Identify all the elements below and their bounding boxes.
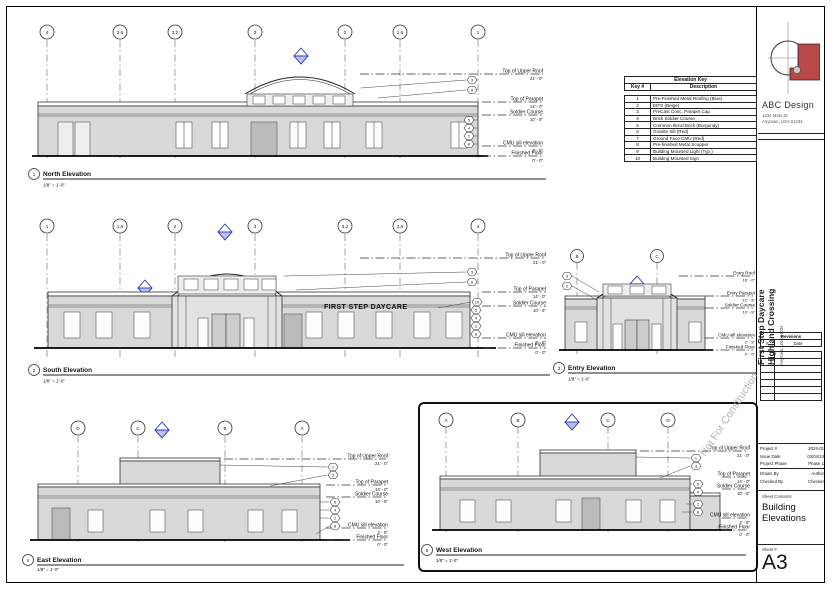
svg-text:West Elevation: West Elevation xyxy=(436,547,482,554)
svg-text:3: 3 xyxy=(254,224,257,229)
revisions-col-number: # xyxy=(761,340,775,347)
svg-text:0' - 0": 0' - 0" xyxy=(535,350,546,355)
firm-logo xyxy=(768,18,820,96)
west-building xyxy=(432,450,732,530)
elevation-key-row: 6Granite Sill (Red) xyxy=(625,128,757,135)
sheet-contents: Building Elevations xyxy=(762,502,824,524)
svg-text:1: 1 xyxy=(477,30,480,35)
svg-text:Soldier Course: Soldier Course xyxy=(510,110,543,116)
svg-text:CMU sill elevation: CMU sill elevation xyxy=(506,333,546,339)
svg-text:B: B xyxy=(223,426,226,431)
svg-text:10' - 8": 10' - 8" xyxy=(375,499,389,504)
svg-text:Top of Upper Roof: Top of Upper Roof xyxy=(505,253,546,259)
svg-text:CMU sill elevation: CMU sill elevation xyxy=(710,513,750,519)
svg-text:Entry Parapet: Entry Parapet xyxy=(727,291,756,296)
svg-text:10: 10 xyxy=(475,300,480,305)
issue-date-value: 03/04/24 xyxy=(807,454,824,459)
entry-level-labels: Entry Roof16' - 0" Entry Parapet12' - 8"… xyxy=(718,271,755,357)
firm-address: 1234 Main St. Anytown, USA 01234 xyxy=(762,113,824,124)
elevation-key-col-key: Key # xyxy=(625,84,651,91)
svg-text:16' - 0": 16' - 0" xyxy=(743,278,756,283)
svg-text:3.6: 3.6 xyxy=(117,30,124,35)
elevation-key-row: 3PreCast Conc. Parapet Cap xyxy=(625,109,757,116)
svg-text:10' - 8": 10' - 8" xyxy=(737,491,751,496)
project-info-block: Project #2024-01 Issue Date03/04/24 Proj… xyxy=(760,445,824,485)
svg-text:Soldier Course: Soldier Course xyxy=(355,492,388,498)
entry-building xyxy=(559,284,713,350)
svg-text:0' - 0": 0' - 0" xyxy=(745,352,756,357)
viewport-north-elevation[interactable]: 43.6 3.23 21.6 1 xyxy=(26,16,554,197)
elevation-key-row: 5Common Bond Brick (Burgundy) xyxy=(625,122,757,129)
west-view-title: 5 West Elevation 1/8" = 1'-0" xyxy=(422,545,747,564)
viewport-south-elevation[interactable]: 11.6 23 3.23.6 4 xyxy=(26,210,558,395)
south-level-labels: Top of Upper Roof21' - 0" Top of Parapet… xyxy=(505,253,546,356)
building-sign-text: FIRST STEP DAYCARE xyxy=(324,304,407,311)
project-phase-value: Phase 1 xyxy=(808,461,824,466)
svg-text:3.6: 3.6 xyxy=(397,224,404,229)
elevation-key-table: Elevation Key Key # Description 1Pre-Fin… xyxy=(624,76,757,162)
north-building xyxy=(32,77,488,156)
svg-text:1/8" = 1'-0": 1/8" = 1'-0" xyxy=(568,377,590,382)
svg-text:Soldier Course: Soldier Course xyxy=(717,484,750,490)
east-grid-bubbles xyxy=(71,421,309,435)
svg-text:1.6: 1.6 xyxy=(397,30,404,35)
svg-text:1: 1 xyxy=(46,224,49,229)
east-level-labels: Top of Upper Roof21' - 0" Top of Parapet… xyxy=(347,454,388,548)
svg-text:1/8" = 1'-0": 1/8" = 1'-0" xyxy=(436,558,458,563)
svg-text:1/8" = 1'-0": 1/8" = 1'-0" xyxy=(43,379,65,384)
svg-text:1/8" = 1'-0": 1/8" = 1'-0" xyxy=(37,567,59,572)
svg-text:2: 2 xyxy=(174,224,177,229)
project-phase-label: Project Phase xyxy=(760,461,787,466)
elevation-key-row: 7Ground Face CMU (Red) xyxy=(625,135,757,142)
elevation-key-row: 10Building Mounted Sign xyxy=(625,155,757,162)
elevation-key-title: Elevation Key xyxy=(625,77,757,84)
svg-text:Top of Parapet: Top of Parapet xyxy=(510,97,543,103)
svg-text:21' - 0": 21' - 0" xyxy=(530,76,544,81)
project-number-value: 2024-01 xyxy=(808,446,824,451)
svg-text:CMU sill elevation: CMU sill elevation xyxy=(503,141,543,147)
svg-text:3.2: 3.2 xyxy=(342,224,349,229)
sheet-contents-label: Sheet Contents xyxy=(762,494,824,499)
svg-text:21' - 0": 21' - 0" xyxy=(375,461,389,466)
south-building xyxy=(34,274,496,348)
svg-text:North Elevation: North Elevation xyxy=(43,171,91,178)
elevation-key-row: 2EIFS (Beige) xyxy=(625,102,757,109)
svg-text:14' - 0": 14' - 0" xyxy=(533,294,547,299)
issue-date-label: Issue Date xyxy=(760,454,781,459)
titleblock-rule xyxy=(758,544,824,545)
viewport-west-elevation-selected[interactable]: AB CD Top xyxy=(418,402,758,572)
north-view-title: 1 North Elevation 1/8" = 1'-0" xyxy=(29,169,547,188)
east-grid-labels: DC BA xyxy=(76,426,304,431)
elevation-marker-icon xyxy=(565,414,579,430)
svg-text:Top of Parapet: Top of Parapet xyxy=(355,480,388,486)
svg-text:Top of Upper Roof: Top of Upper Roof xyxy=(502,69,543,75)
svg-text:Finished Floor: Finished Floor xyxy=(514,343,546,349)
entry-grid-labels: BC xyxy=(575,254,659,259)
svg-text:CMU sill elevation: CMU sill elevation xyxy=(348,523,388,529)
elevation-key-row: 1Pre-Finished Metal Roofing (Blue) xyxy=(625,96,757,103)
svg-text:Soldier Course: Soldier Course xyxy=(513,301,546,307)
elevation-key-row: 4Brick Soldier Course xyxy=(625,115,757,122)
elevation-key-row: 8Pre-finished Metal Scupper xyxy=(625,142,757,149)
drawing-sheet: 43.6 3.23 21.6 1 xyxy=(0,0,832,590)
project-number-label: Project # xyxy=(760,446,777,451)
firm-address-line2: Anytown, USA 01234 xyxy=(762,119,824,125)
firm-name: ABC Design xyxy=(762,100,824,110)
south-grid-labels: 11.6 23 3.23.6 4 xyxy=(46,224,480,229)
north-level-labels: Top of Upper Roof21' - 0" Top of Parapet… xyxy=(502,69,543,164)
svg-text:B: B xyxy=(575,254,578,259)
viewport-east-elevation[interactable]: DC BA Top of U xyxy=(20,410,412,577)
north-grid-bubbles xyxy=(40,25,485,39)
west-grid-bubbles xyxy=(439,413,675,427)
revisions-title: Revisions xyxy=(761,333,822,340)
svg-text:2: 2 xyxy=(344,30,347,35)
svg-text:CMU sill elevation: CMU sill elevation xyxy=(718,333,755,338)
svg-text:10' - 8": 10' - 8" xyxy=(533,308,547,313)
svg-text:21' - 0": 21' - 0" xyxy=(533,260,547,265)
viewport-entry-elevation[interactable]: BC xyxy=(553,242,763,389)
svg-text:Top of Upper Roof: Top of Upper Roof xyxy=(347,454,388,460)
sheet-number: A3 xyxy=(762,551,824,575)
elevation-marker-icon xyxy=(218,224,232,240)
south-view-title: 2 South Elevation 1/8" = 1'-0" xyxy=(29,365,551,384)
checked-by-value: Checker xyxy=(808,479,824,484)
svg-text:Finished Floor: Finished Floor xyxy=(718,525,750,531)
svg-text:South Elevation: South Elevation xyxy=(43,367,92,374)
svg-text:21' - 0": 21' - 0" xyxy=(737,453,751,458)
revisions-empty-rows xyxy=(760,351,822,401)
titleblock-rule xyxy=(758,443,824,444)
elevation-key-rows: 1Pre-Finished Metal Roofing (Blue)2EIFS … xyxy=(625,96,757,162)
svg-text:Top of Parapet: Top of Parapet xyxy=(513,287,546,293)
svg-text:10' - 8": 10' - 8" xyxy=(743,310,756,315)
svg-text:East Elevation: East Elevation xyxy=(37,557,81,564)
svg-text:Soldier Course: Soldier Course xyxy=(725,303,756,308)
entry-view-title: 3 Entry Elevation 1/8" = 1'-0" xyxy=(554,363,758,382)
svg-text:Entry Elevation: Entry Elevation xyxy=(568,365,615,372)
svg-text:B: B xyxy=(516,418,519,423)
svg-text:4: 4 xyxy=(477,224,480,229)
north-grid-labels: 43.6 3.23 21.6 1 xyxy=(46,30,480,35)
svg-text:Finished Floor: Finished Floor xyxy=(726,345,756,350)
svg-text:0' - 0": 0' - 0" xyxy=(532,158,543,163)
revisions-table: Revisions # Date xyxy=(760,332,822,401)
elevation-key-col-desc: Description xyxy=(651,84,757,91)
svg-text:0' - 0": 0' - 0" xyxy=(377,542,388,547)
svg-text:14' - 0": 14' - 0" xyxy=(530,104,544,109)
elevation-key-row: 9Building Mounted Light (Typ.) xyxy=(625,148,757,155)
drawn-by-value: Author xyxy=(811,471,824,476)
svg-text:1/8" = 1'-0": 1/8" = 1'-0" xyxy=(43,183,65,188)
titleblock-rule xyxy=(758,139,824,140)
checked-by-label: Checked By xyxy=(760,479,783,484)
west-grid-labels: AB CD xyxy=(444,418,670,423)
east-view-title: 4 East Elevation 1/8" = 1'-0" xyxy=(23,555,405,573)
elevation-marker-icon xyxy=(294,48,308,64)
svg-text:Entry Roof: Entry Roof xyxy=(733,271,755,276)
svg-text:Finished Floor: Finished Floor xyxy=(511,151,543,157)
elevation-marker-icon xyxy=(155,422,169,438)
titleblock-rule xyxy=(758,490,824,491)
titleblock-rule xyxy=(758,133,824,134)
entry-grid-bubbles xyxy=(571,250,664,263)
svg-text:10' - 8": 10' - 8" xyxy=(530,117,544,122)
svg-text:3.2: 3.2 xyxy=(172,30,179,35)
svg-text:1.6: 1.6 xyxy=(117,224,124,229)
drawn-by-label: Drawn By xyxy=(760,471,779,476)
svg-text:3: 3 xyxy=(254,30,257,35)
svg-text:0' - 0": 0' - 0" xyxy=(739,532,750,537)
svg-text:Finished Floor: Finished Floor xyxy=(356,535,388,541)
south-grid-bubbles xyxy=(40,219,485,233)
revisions-col-date: Date xyxy=(775,340,822,347)
svg-text:Top of Parapet: Top of Parapet xyxy=(717,472,750,478)
svg-text:4: 4 xyxy=(46,30,49,35)
